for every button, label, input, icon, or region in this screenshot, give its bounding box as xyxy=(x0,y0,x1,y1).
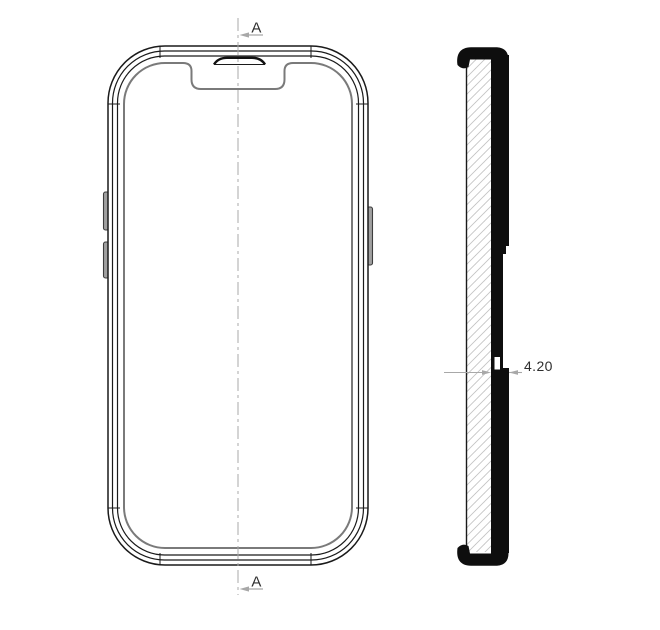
technical-drawing-canvas: A A xyxy=(0,0,660,630)
case-wall-section xyxy=(491,55,509,553)
wall-middle-segment xyxy=(491,246,503,370)
arrowhead-left-icon xyxy=(509,370,518,375)
dimension-value: 4.20 xyxy=(524,358,553,374)
arrowhead-left-icon xyxy=(240,586,250,591)
arrowhead-left-icon xyxy=(240,32,250,37)
section-hatch-area xyxy=(467,58,491,552)
section-label-top: A xyxy=(251,20,261,37)
wall-step-slot-lower xyxy=(495,357,501,370)
section-marker-top: A xyxy=(240,20,264,38)
section-label-bottom: A xyxy=(251,574,261,591)
phone-case-drawing: A A xyxy=(0,0,660,630)
section-side-view: 4.20 xyxy=(444,47,553,566)
section-marker-bottom: A xyxy=(240,574,264,592)
